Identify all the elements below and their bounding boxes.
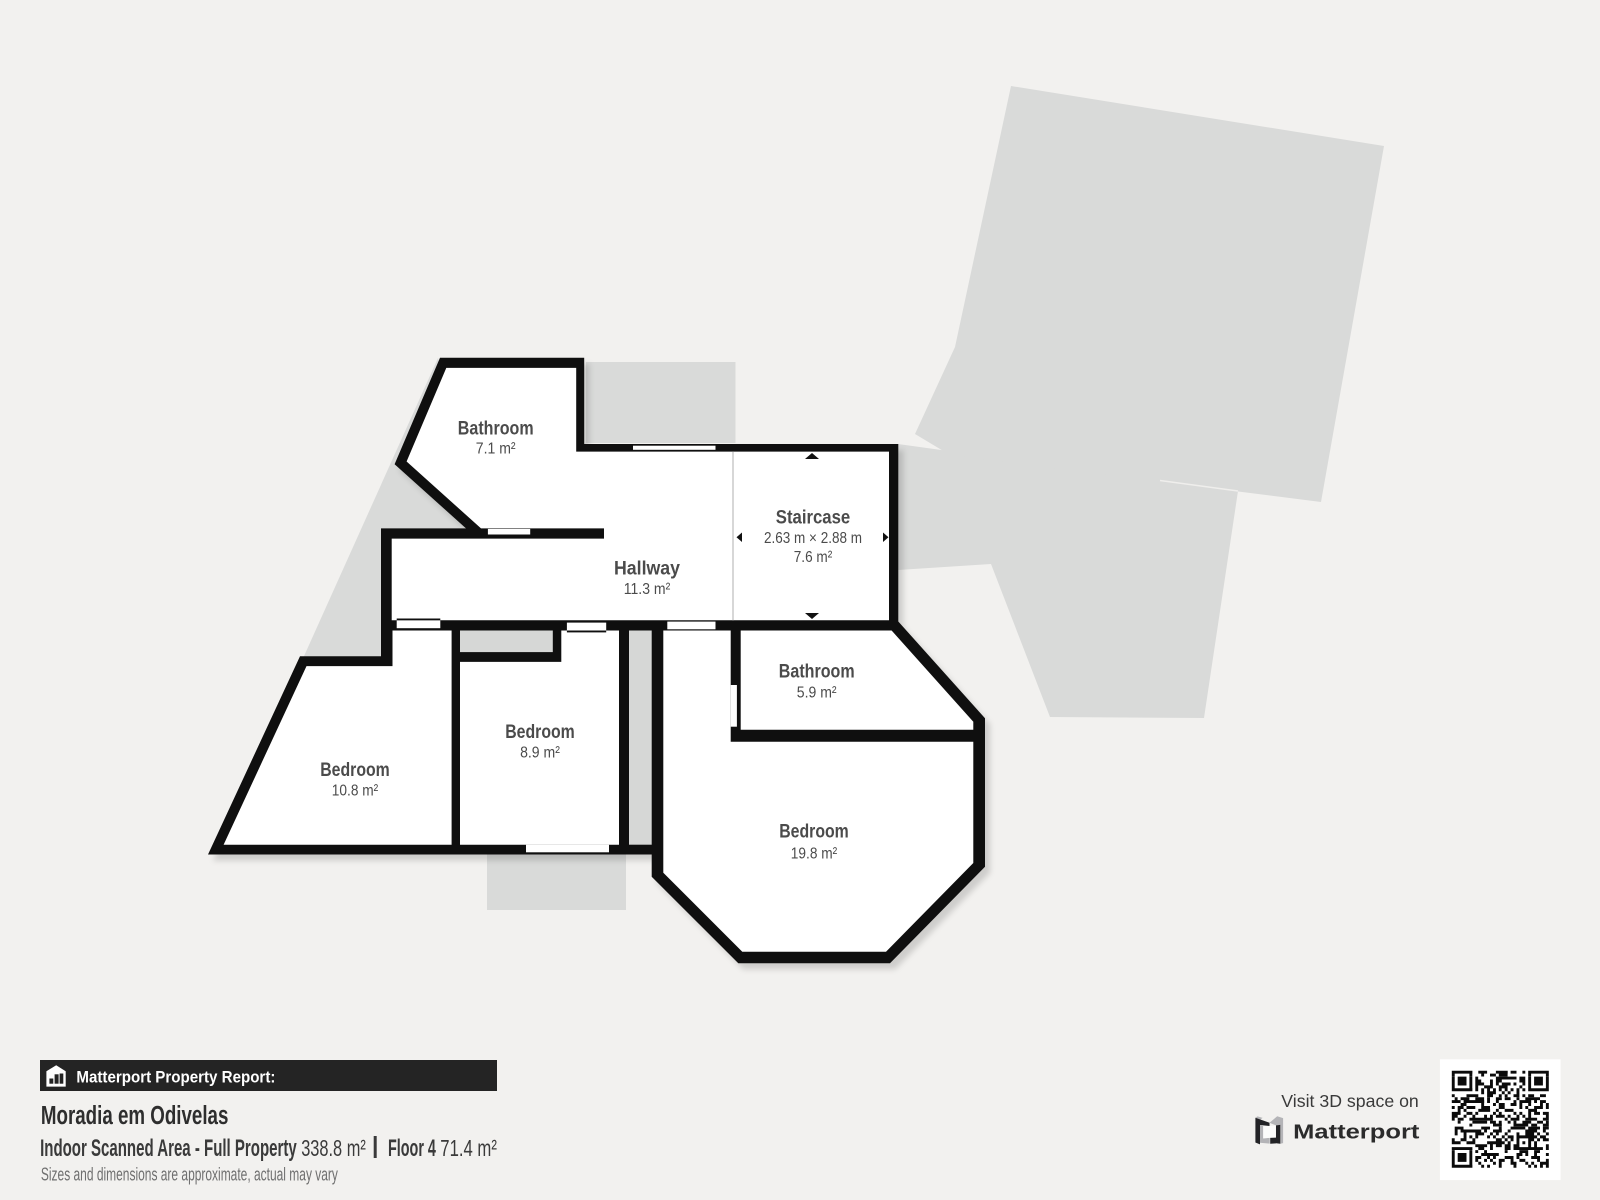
svg-text:Bathroom: Bathroom <box>779 661 855 682</box>
svg-text:Bedroom: Bedroom <box>320 760 390 781</box>
svg-text:2.63 m × 2.88 m: 2.63 m × 2.88 m <box>764 530 862 547</box>
svg-text:11.3 m²: 11.3 m² <box>624 581 671 598</box>
svg-text:7.1 m²: 7.1 m² <box>476 441 516 458</box>
svg-text:71.4 m²: 71.4 m² <box>440 1135 497 1161</box>
svg-text:10.8 m²: 10.8 m² <box>332 783 378 800</box>
svg-text:Matterport Property Report:: Matterport Property Report: <box>76 1067 275 1086</box>
svg-text:Staircase: Staircase <box>776 508 850 529</box>
svg-text:Hallway: Hallway <box>614 559 680 580</box>
svg-text:Bedroom: Bedroom <box>779 821 849 842</box>
svg-text:7.6 m²: 7.6 m² <box>794 549 833 566</box>
svg-text:5.9 m²: 5.9 m² <box>797 684 837 701</box>
svg-text:Bathroom: Bathroom <box>458 419 534 440</box>
svg-text:Matterport: Matterport <box>1293 1121 1419 1144</box>
svg-text:Visit 3D space on: Visit 3D space on <box>1281 1091 1419 1111</box>
svg-text:8.9 m²: 8.9 m² <box>520 745 560 762</box>
svg-text:Indoor Scanned Area - Full Pro: Indoor Scanned Area - Full Property <box>40 1135 297 1162</box>
svg-text:Sizes and dimensions are appro: Sizes and dimensions are approximate, ac… <box>41 1164 338 1185</box>
svg-text:Bedroom: Bedroom <box>505 722 575 743</box>
svg-text:Moradia em Odivelas: Moradia em Odivelas <box>41 1102 229 1130</box>
svg-text:19.8 m²: 19.8 m² <box>791 845 837 862</box>
svg-text:338.8 m²: 338.8 m² <box>301 1135 366 1161</box>
svg-text:Floor 4: Floor 4 <box>388 1135 436 1162</box>
